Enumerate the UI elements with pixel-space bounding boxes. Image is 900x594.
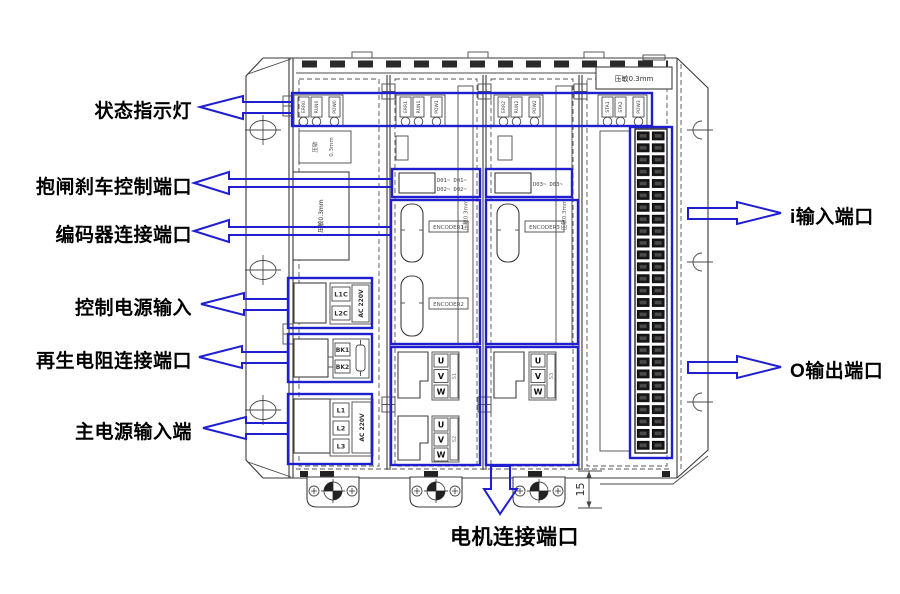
led-lamp (634, 117, 643, 126)
varistor-strip-3: 压敏0.3mm (556, 86, 572, 344)
main-power-connector: L1 L2 L3 AC 220V (294, 399, 373, 456)
io-terminal-strip (635, 129, 667, 453)
mount-hole-crosshair (245, 255, 281, 285)
terminal-label: L2C (334, 310, 348, 318)
right-side-hooks (687, 121, 713, 411)
led-label: STA1 (605, 101, 611, 112)
panel-3: ERR2 RUN2 POW2 压敏0.3mm D03~ D03~ ENCODER… (494, 86, 572, 400)
mount-hole-crosshair (245, 395, 281, 425)
led-lamp (312, 117, 321, 126)
label-main-power: 主电源输入端 (75, 417, 192, 444)
arrow-motor-port (484, 466, 517, 514)
terminal-label: BK2 (336, 364, 349, 371)
led-label: POW1 (434, 100, 440, 114)
mounting-feet (307, 477, 565, 507)
voltage-label: AC 220V (358, 289, 365, 318)
foot (307, 477, 359, 507)
varistor-box-small: 压敏 0.3mm (299, 131, 351, 163)
phase-label: V (438, 372, 445, 381)
socket-tag: S3 (549, 373, 555, 379)
led-lamp (414, 117, 423, 126)
motor-connector-s1: U V W S1 (398, 352, 459, 400)
brake-terminal-label: D01~ D01~ (437, 178, 467, 184)
led-label: ERR0 (301, 101, 307, 113)
led-block-4: STA1 STA2 POW3 (598, 95, 647, 126)
phase-label: V (438, 436, 445, 445)
mount-hole-crosshair (245, 115, 281, 145)
led-lamp (499, 117, 508, 126)
phase-label: U (438, 421, 445, 430)
encoder-socket (401, 276, 423, 336)
highlight-boxes (288, 93, 672, 465)
led-label: POW0 (332, 100, 338, 114)
phase-label: W (437, 388, 446, 397)
phase-label: W (534, 388, 543, 397)
panel-1: ERR0 RUN0 POW0 压敏 0.3mm 压敏0.3mm L1C L2C … (293, 95, 373, 456)
led-lamp (512, 117, 521, 126)
led-lamp (299, 117, 308, 126)
label-input-port: i输入端口 (790, 202, 874, 229)
foot (410, 477, 462, 507)
led-lamp (401, 117, 410, 126)
label-status-leds: 状态指示灯 (94, 96, 192, 123)
terminal-label: L1 (337, 407, 346, 415)
led-lamp (616, 117, 625, 126)
varistor-label: 0.3mm (329, 137, 335, 156)
foot (513, 477, 565, 507)
brake-terminal-label: D03~ D03~ (533, 182, 563, 188)
dimension-value: 15 (574, 483, 587, 497)
phase-label: U (535, 357, 542, 366)
brake-connector-2: D01~ D01~ D02~ D02~ (399, 173, 467, 193)
varistor-label: 压敏 (311, 141, 319, 153)
led-block-1: ERR0 RUN0 POW0 (294, 95, 343, 126)
callout-arrows (194, 96, 781, 514)
control-power-connector: L1C L2C AC 220V (294, 283, 371, 324)
terminal-label: L3 (337, 443, 346, 451)
label-regen-resistor: 再生电阻连接端口 (36, 346, 192, 373)
motor-connector-s3: U V W S3 (494, 352, 556, 400)
varistor-box-large: 压敏0.3mm (293, 172, 349, 260)
encoder-label: ENCODER3 (529, 225, 560, 231)
arrow-control-power (201, 293, 288, 315)
label-output-port: O输出端口 (790, 356, 883, 383)
led-label: ERR2 (501, 101, 507, 113)
diagram-canvas: ERR0 RUN0 POW0 压敏 0.3mm 压敏0.3mm L1C L2C … (0, 0, 900, 594)
socket-tag: S1 (452, 373, 458, 379)
socket-tag: S2 (452, 436, 458, 442)
dimension-foot-height: 15 (574, 471, 602, 508)
terminal-label: L1C (334, 291, 348, 299)
label-motor-port: 电机连接端口 (450, 521, 579, 551)
resistor-symbol (356, 345, 365, 371)
encoder-label: ENCODER1 (433, 225, 464, 231)
varistor-label: 压敏0.3mm (615, 74, 654, 83)
led-block-2: ERR1 RUN1 POW1 (396, 95, 445, 126)
led-label: RUN2 (514, 101, 520, 114)
led-lamp (603, 117, 612, 126)
led-label: RUN1 (416, 101, 422, 114)
led-lamp (530, 117, 539, 126)
led-label: POW2 (532, 100, 538, 114)
arrow-input-port (688, 202, 781, 224)
phase-label: W (437, 451, 446, 460)
phase-label: V (535, 372, 542, 381)
label-encoder-port: 编码器连接端口 (55, 220, 192, 247)
led-label: RUN0 (314, 101, 320, 114)
terminal-label: L2 (337, 425, 346, 433)
terminal-label: BK1 (336, 347, 349, 354)
motor-connector-s2: U V W S2 (398, 416, 459, 462)
mounting-flange (245, 115, 281, 425)
encoder-socket (497, 204, 519, 262)
led-block-3: ERR2 RUN2 POW2 (494, 95, 543, 126)
encoder-label: ENCODER2 (433, 302, 464, 308)
led-label: ERR1 (403, 101, 409, 113)
label-control-power: 控制电源输入 (75, 293, 192, 320)
brake-terminal-label: D02~ D02~ (437, 187, 467, 193)
arrow-regen-resistor (199, 346, 288, 368)
label-brake-port: 抱闸刹车控制端口 (36, 172, 192, 199)
arrow-output-port (688, 356, 781, 378)
led-lamp (432, 117, 441, 126)
phase-label: U (438, 357, 445, 366)
encoder-socket (401, 204, 423, 262)
led-label: POW3 (636, 100, 642, 114)
panel-2: ERR1 RUN1 POW1 压敏0.3mm D01~ D01~ D02~ D0… (396, 86, 473, 462)
encoder-connector-3: ENCODER3 (497, 204, 564, 262)
regen-resistor-connector: BK1 BK2 (294, 339, 369, 378)
led-label: STA2 (618, 101, 624, 112)
voltage-label: AC 220V (359, 413, 366, 442)
led-lamp (330, 117, 339, 126)
brake-connector-3: D03~ D03~ (495, 173, 563, 193)
varistor-box-top: 压敏0.3mm (596, 67, 672, 89)
